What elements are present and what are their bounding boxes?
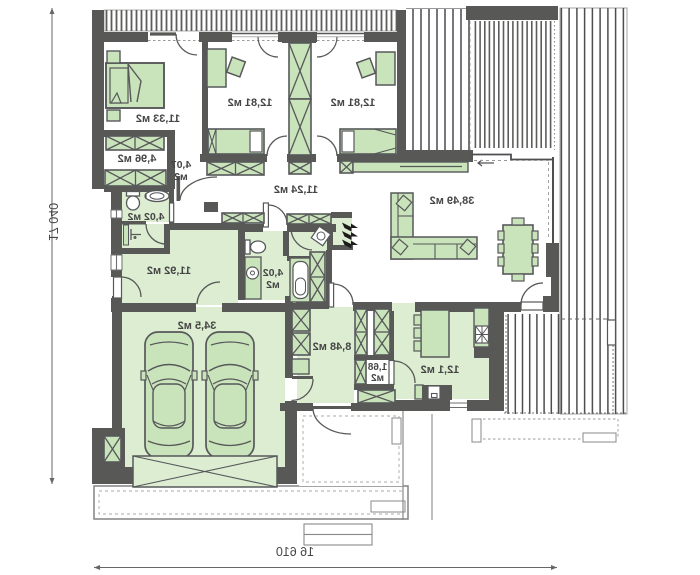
svg-text:4,02 м2: 4,02 м2	[127, 211, 164, 223]
svg-text:12,81 м2: 12,81 м2	[228, 97, 273, 109]
svg-text:11,92 м2: 11,92 м2	[147, 265, 191, 277]
svg-text:12,81 м2: 12,81 м2	[331, 97, 376, 109]
svg-text:м2: м2	[174, 171, 188, 183]
svg-text:1,68: 1,68	[367, 362, 387, 373]
svg-text:34,5 м2: 34,5 м2	[178, 320, 217, 332]
svg-text:м2: м2	[266, 279, 280, 291]
svg-text:11,24 м2: 11,24 м2	[274, 184, 318, 196]
svg-text:38,49 м2: 38,49 м2	[430, 195, 475, 207]
svg-text:4,07: 4,07	[171, 159, 192, 171]
svg-text:17 040: 17 040	[46, 203, 60, 241]
svg-text:12,1 м2: 12,1 м2	[421, 364, 460, 376]
svg-text:8,48 м2: 8,48 м2	[313, 341, 352, 353]
svg-text:16 610: 16 610	[276, 545, 314, 559]
svg-text:м2: м2	[371, 373, 384, 384]
svg-text:4,96 м2: 4,96 м2	[118, 153, 157, 165]
svg-text:11,33 м2: 11,33 м2	[136, 113, 180, 125]
svg-text:4,02: 4,02	[263, 267, 284, 279]
